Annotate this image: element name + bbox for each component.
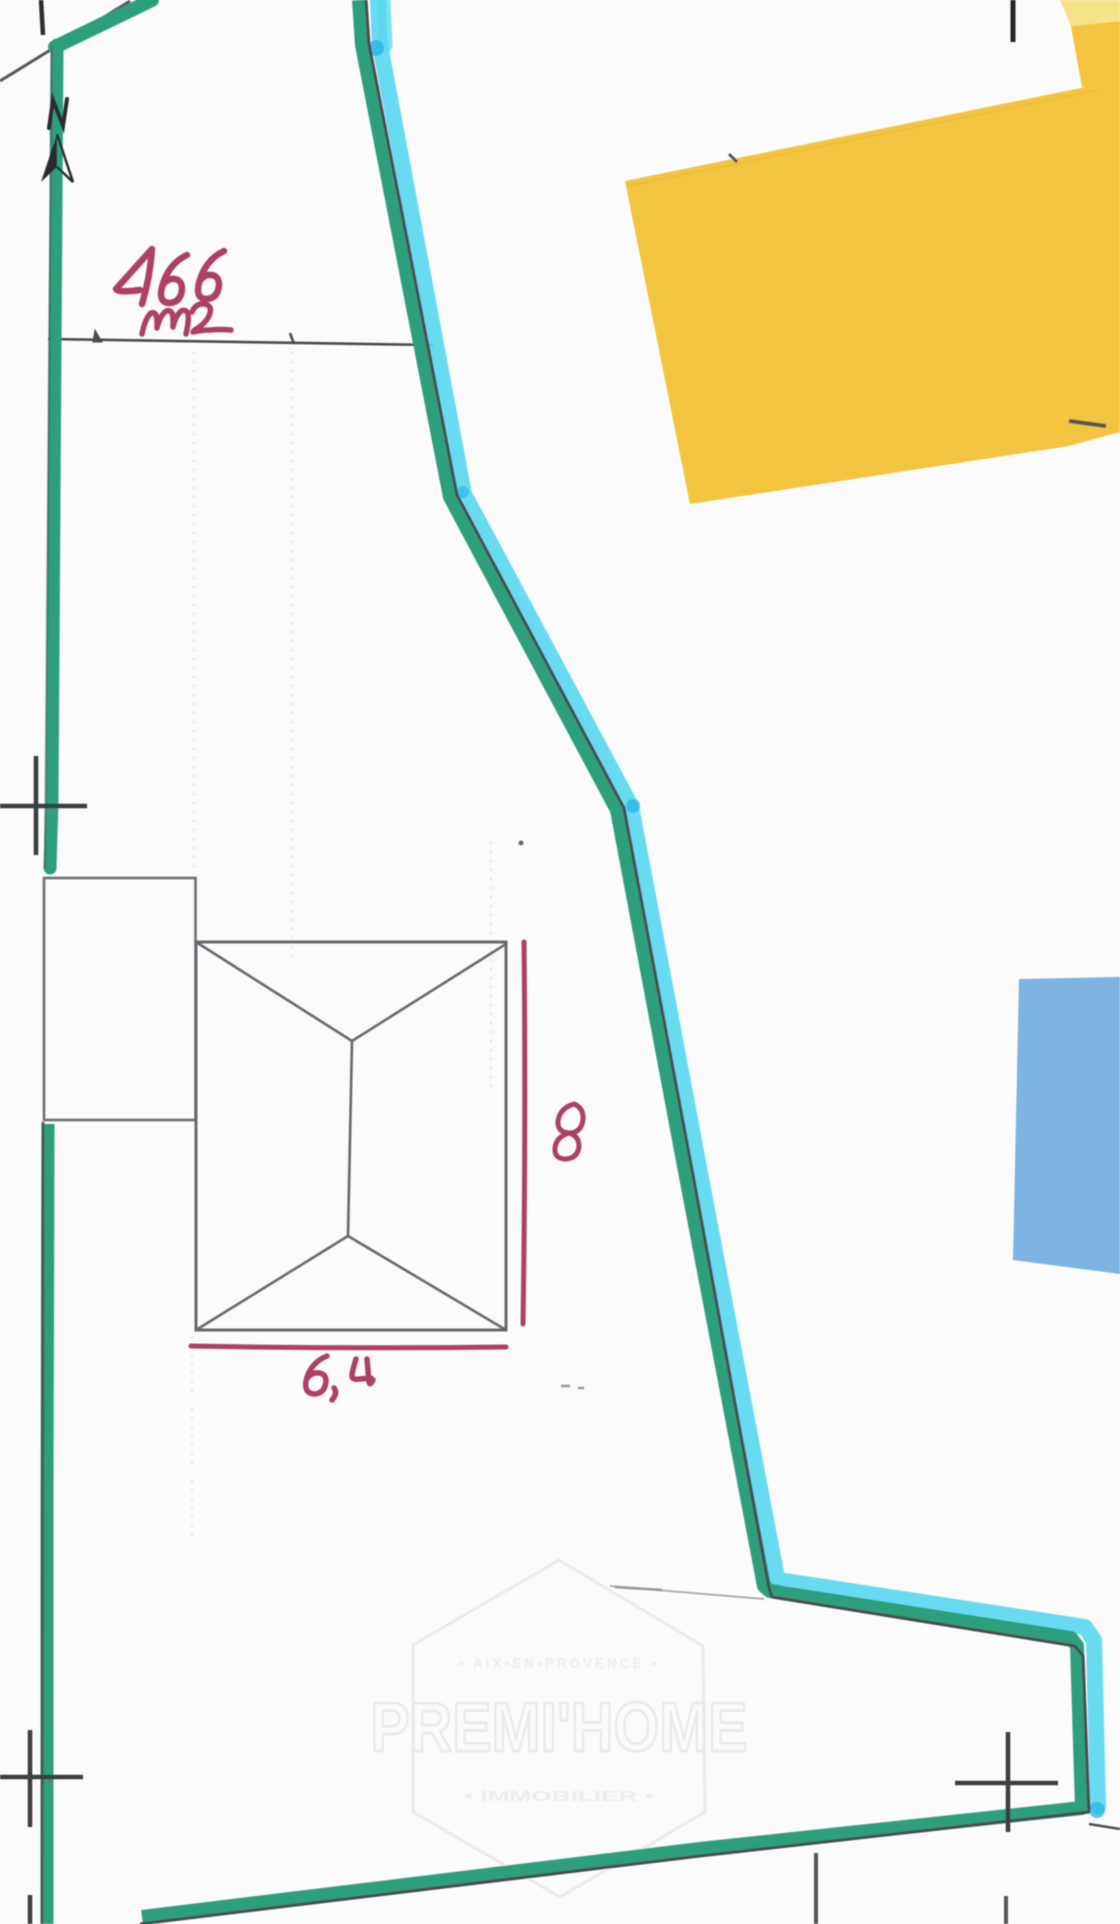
svg-text:• AIX•EN•PROVENCE •: • AIX•EN•PROVENCE • bbox=[459, 1656, 659, 1671]
svg-text:PREMI'HOME: PREMI'HOME bbox=[371, 1688, 748, 1766]
svg-text:• IMMOBILIER •: • IMMOBILIER • bbox=[464, 1788, 654, 1805]
